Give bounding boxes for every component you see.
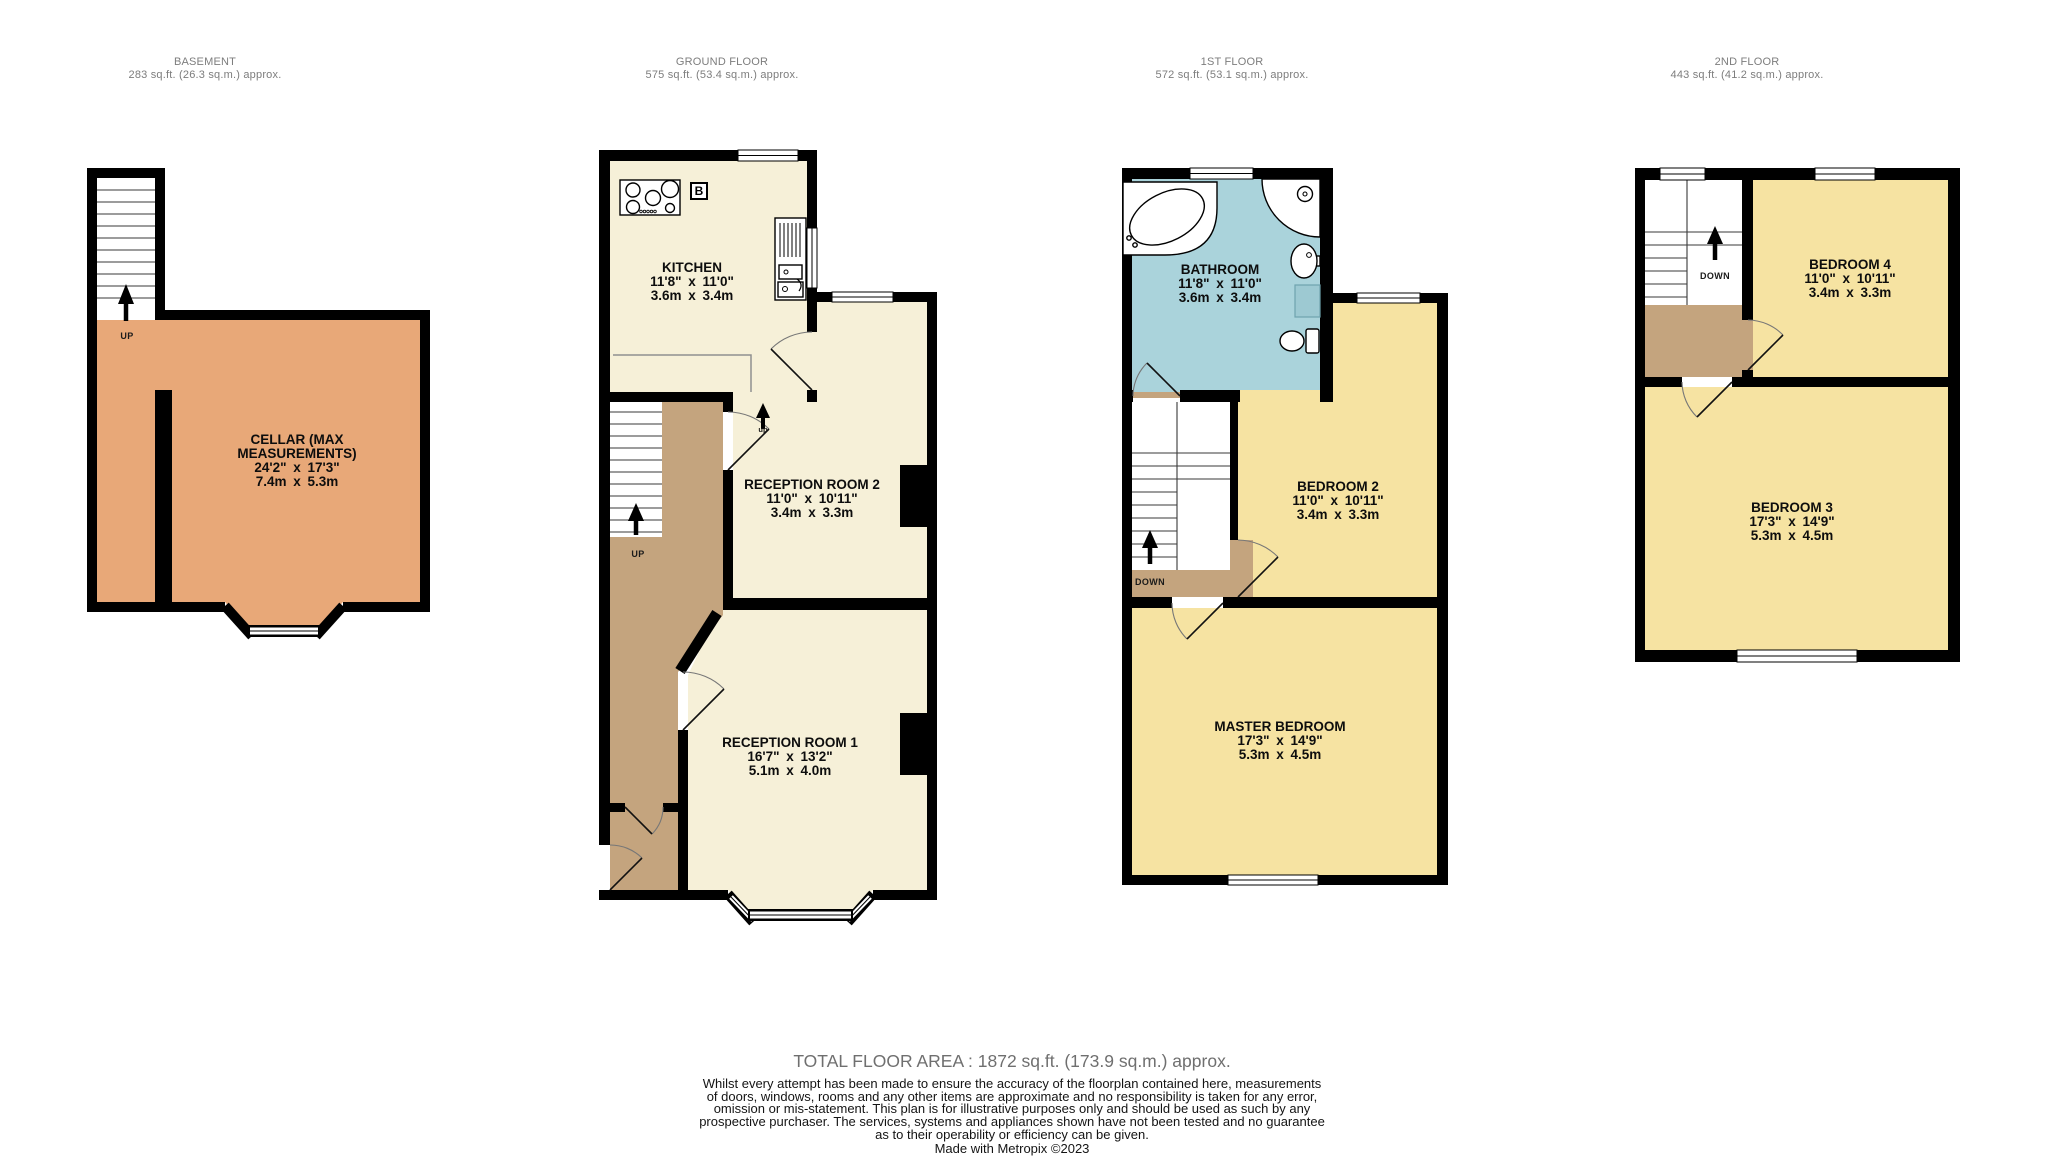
room-name: RECEPTION ROOM 1 bbox=[670, 736, 910, 750]
room-dims-imperial: 11'0" x 10'11" bbox=[692, 492, 932, 506]
room-label-cellar: CELLAR (MAX MEASUREMENTS) 24'2" x 17'3" … bbox=[197, 433, 397, 489]
bath-icon bbox=[1120, 177, 1217, 256]
room-label-bedroom3: BEDROOM 3 17'3" x 14'9" 5.3m x 4.5m bbox=[1672, 501, 1912, 543]
window bbox=[1357, 293, 1420, 303]
floor-header-first: 1ST FLOOR 572 sq.ft. (53.1 sq.m.) approx… bbox=[1072, 56, 1392, 82]
floor-area: 572 sq.ft. (53.1 sq.m.) approx. bbox=[1072, 69, 1392, 82]
disclaimer-text: Whilst every attempt has been made to en… bbox=[512, 1078, 1512, 1142]
room-dims-metric: 7.4m x 5.3m bbox=[197, 475, 397, 489]
room-label-bedroom4: BEDROOM 4 11'0" x 10'11" 3.4m x 3.3m bbox=[1730, 258, 1970, 300]
room-label-reception2: RECEPTION ROOM 2 11'0" x 10'11" 3.4m x 3… bbox=[692, 478, 932, 520]
room-name: CELLAR (MAX MEASUREMENTS) bbox=[197, 433, 397, 461]
room-name: BATHROOM bbox=[1100, 263, 1340, 277]
room-name: BEDROOM 3 bbox=[1672, 501, 1912, 515]
room-label-kitchen: KITCHEN 11'8" x 11'0" 3.6m x 3.4m bbox=[572, 261, 812, 303]
floor-name: 2ND FLOOR bbox=[1587, 56, 1907, 69]
total-floor-area: TOTAL FLOOR AREA : 1872 sq.ft. (173.9 sq… bbox=[312, 1051, 1712, 1072]
window bbox=[1660, 168, 1705, 180]
stairs bbox=[1645, 180, 1742, 305]
toilet-icon bbox=[1280, 329, 1319, 353]
room-name: KITCHEN bbox=[572, 261, 812, 275]
window bbox=[1190, 168, 1253, 179]
stair-label-down: DOWN bbox=[1110, 577, 1190, 587]
stairs bbox=[97, 178, 155, 321]
step-label-up: up bbox=[748, 425, 778, 434]
room-name: BEDROOM 2 bbox=[1218, 480, 1458, 494]
floor-name: 1ST FLOOR bbox=[1072, 56, 1392, 69]
floor-header-basement: BASEMENT 283 sq.ft. (26.3 sq.m.) approx. bbox=[45, 56, 365, 82]
room-dims-imperial: 24'2" x 17'3" bbox=[197, 461, 397, 475]
room-dims-imperial: 11'8" x 11'0" bbox=[572, 275, 812, 289]
room-label-bedroom2: BEDROOM 2 11'0" x 10'11" 3.4m x 3.3m bbox=[1218, 480, 1458, 522]
floor-name: GROUND FLOOR bbox=[562, 56, 882, 69]
floor-header-second: 2ND FLOOR 443 sq.ft. (41.2 sq.m.) approx… bbox=[1587, 56, 1907, 82]
stair-label-up: UP bbox=[608, 549, 668, 559]
room-label-bathroom: BATHROOM 11'8" x 11'0" 3.6m x 3.4m bbox=[1100, 263, 1340, 305]
window bbox=[1737, 650, 1857, 662]
room-dims-imperial: 17'3" x 14'9" bbox=[1160, 734, 1400, 748]
floor-area: 443 sq.ft. (41.2 sq.m.) approx. bbox=[1587, 69, 1907, 82]
stairs bbox=[1132, 402, 1230, 570]
floor-name: BASEMENT bbox=[45, 56, 365, 69]
window bbox=[738, 150, 798, 161]
room-dims-imperial: 11'0" x 10'11" bbox=[1730, 272, 1970, 286]
room-dims-imperial: 16'7" x 13'2" bbox=[670, 750, 910, 764]
window bbox=[832, 292, 893, 302]
room-dims-metric: 3.6m x 3.4m bbox=[1100, 291, 1340, 305]
stair-label-down: DOWN bbox=[1675, 271, 1755, 281]
interior-wall bbox=[155, 390, 172, 602]
credit-text: Made with Metropix ©2023 bbox=[512, 1141, 1512, 1156]
floor-area: 283 sq.ft. (26.3 sq.m.) approx. bbox=[45, 69, 365, 82]
room-dims-metric: 3.4m x 3.3m bbox=[692, 506, 932, 520]
floorplan-page: BASEMENT 283 sq.ft. (26.3 sq.m.) approx.… bbox=[0, 0, 2048, 1172]
stair-label-up: UP bbox=[107, 331, 147, 341]
floor-area: 575 sq.ft. (53.4 sq.m.) approx. bbox=[562, 69, 882, 82]
room-dims-imperial: 11'0" x 10'11" bbox=[1218, 494, 1458, 508]
room-dims-imperial: 11'8" x 11'0" bbox=[1100, 277, 1340, 291]
room-dims-metric: 5.3m x 4.5m bbox=[1160, 748, 1400, 762]
room-label-reception1: RECEPTION ROOM 1 16'7" x 13'2" 5.1m x 4.… bbox=[670, 736, 910, 778]
window bbox=[1228, 875, 1318, 885]
room-dims-metric: 5.3m x 4.5m bbox=[1672, 529, 1912, 543]
basement-floorplan bbox=[80, 160, 450, 660]
room-dims-metric: 3.4m x 3.3m bbox=[1730, 286, 1970, 300]
room-dims-imperial: 17'3" x 14'9" bbox=[1672, 515, 1912, 529]
hob-icon bbox=[620, 180, 680, 215]
room-label-master-bedroom: MASTER BEDROOM 17'3" x 14'9" 5.3m x 4.5m bbox=[1160, 720, 1400, 762]
boiler-label: B bbox=[690, 182, 708, 200]
second-floorplan bbox=[1630, 160, 1970, 680]
room-name: BEDROOM 4 bbox=[1730, 258, 1970, 272]
room-dims-metric: 3.6m x 3.4m bbox=[572, 289, 812, 303]
room-name: RECEPTION ROOM 2 bbox=[692, 478, 932, 492]
room-name: MASTER BEDROOM bbox=[1160, 720, 1400, 734]
window bbox=[1815, 168, 1875, 180]
room-dims-metric: 3.4m x 3.3m bbox=[1218, 508, 1458, 522]
room-dims-metric: 5.1m x 4.0m bbox=[670, 764, 910, 778]
floor-header-ground: GROUND FLOOR 575 sq.ft. (53.4 sq.m.) app… bbox=[562, 56, 882, 82]
stairs bbox=[610, 400, 662, 537]
